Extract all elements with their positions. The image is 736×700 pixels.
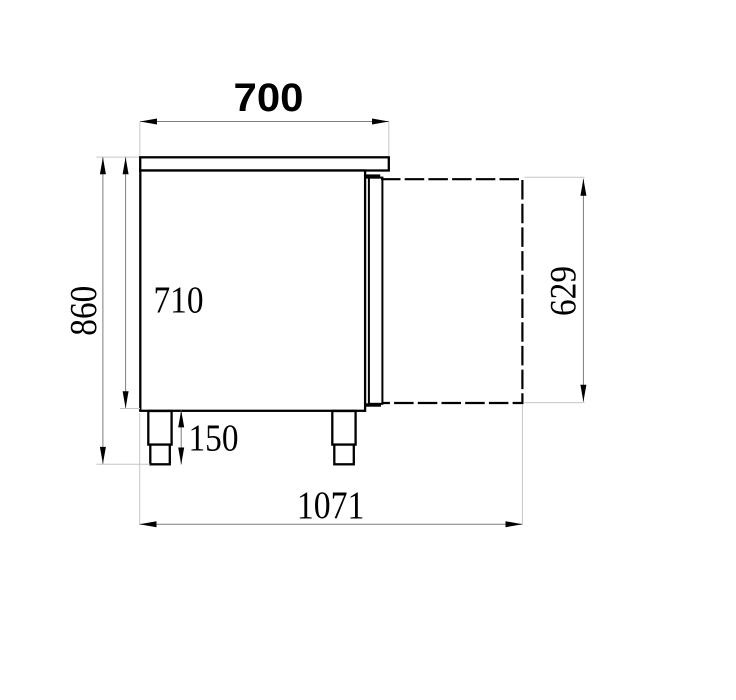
svg-text:700: 700 [234,76,304,120]
svg-text:150: 150 [189,418,239,460]
svg-text:1071: 1071 [297,484,365,527]
svg-text:710: 710 [154,280,204,322]
svg-text:860: 860 [63,286,105,336]
svg-text:629: 629 [544,266,585,316]
